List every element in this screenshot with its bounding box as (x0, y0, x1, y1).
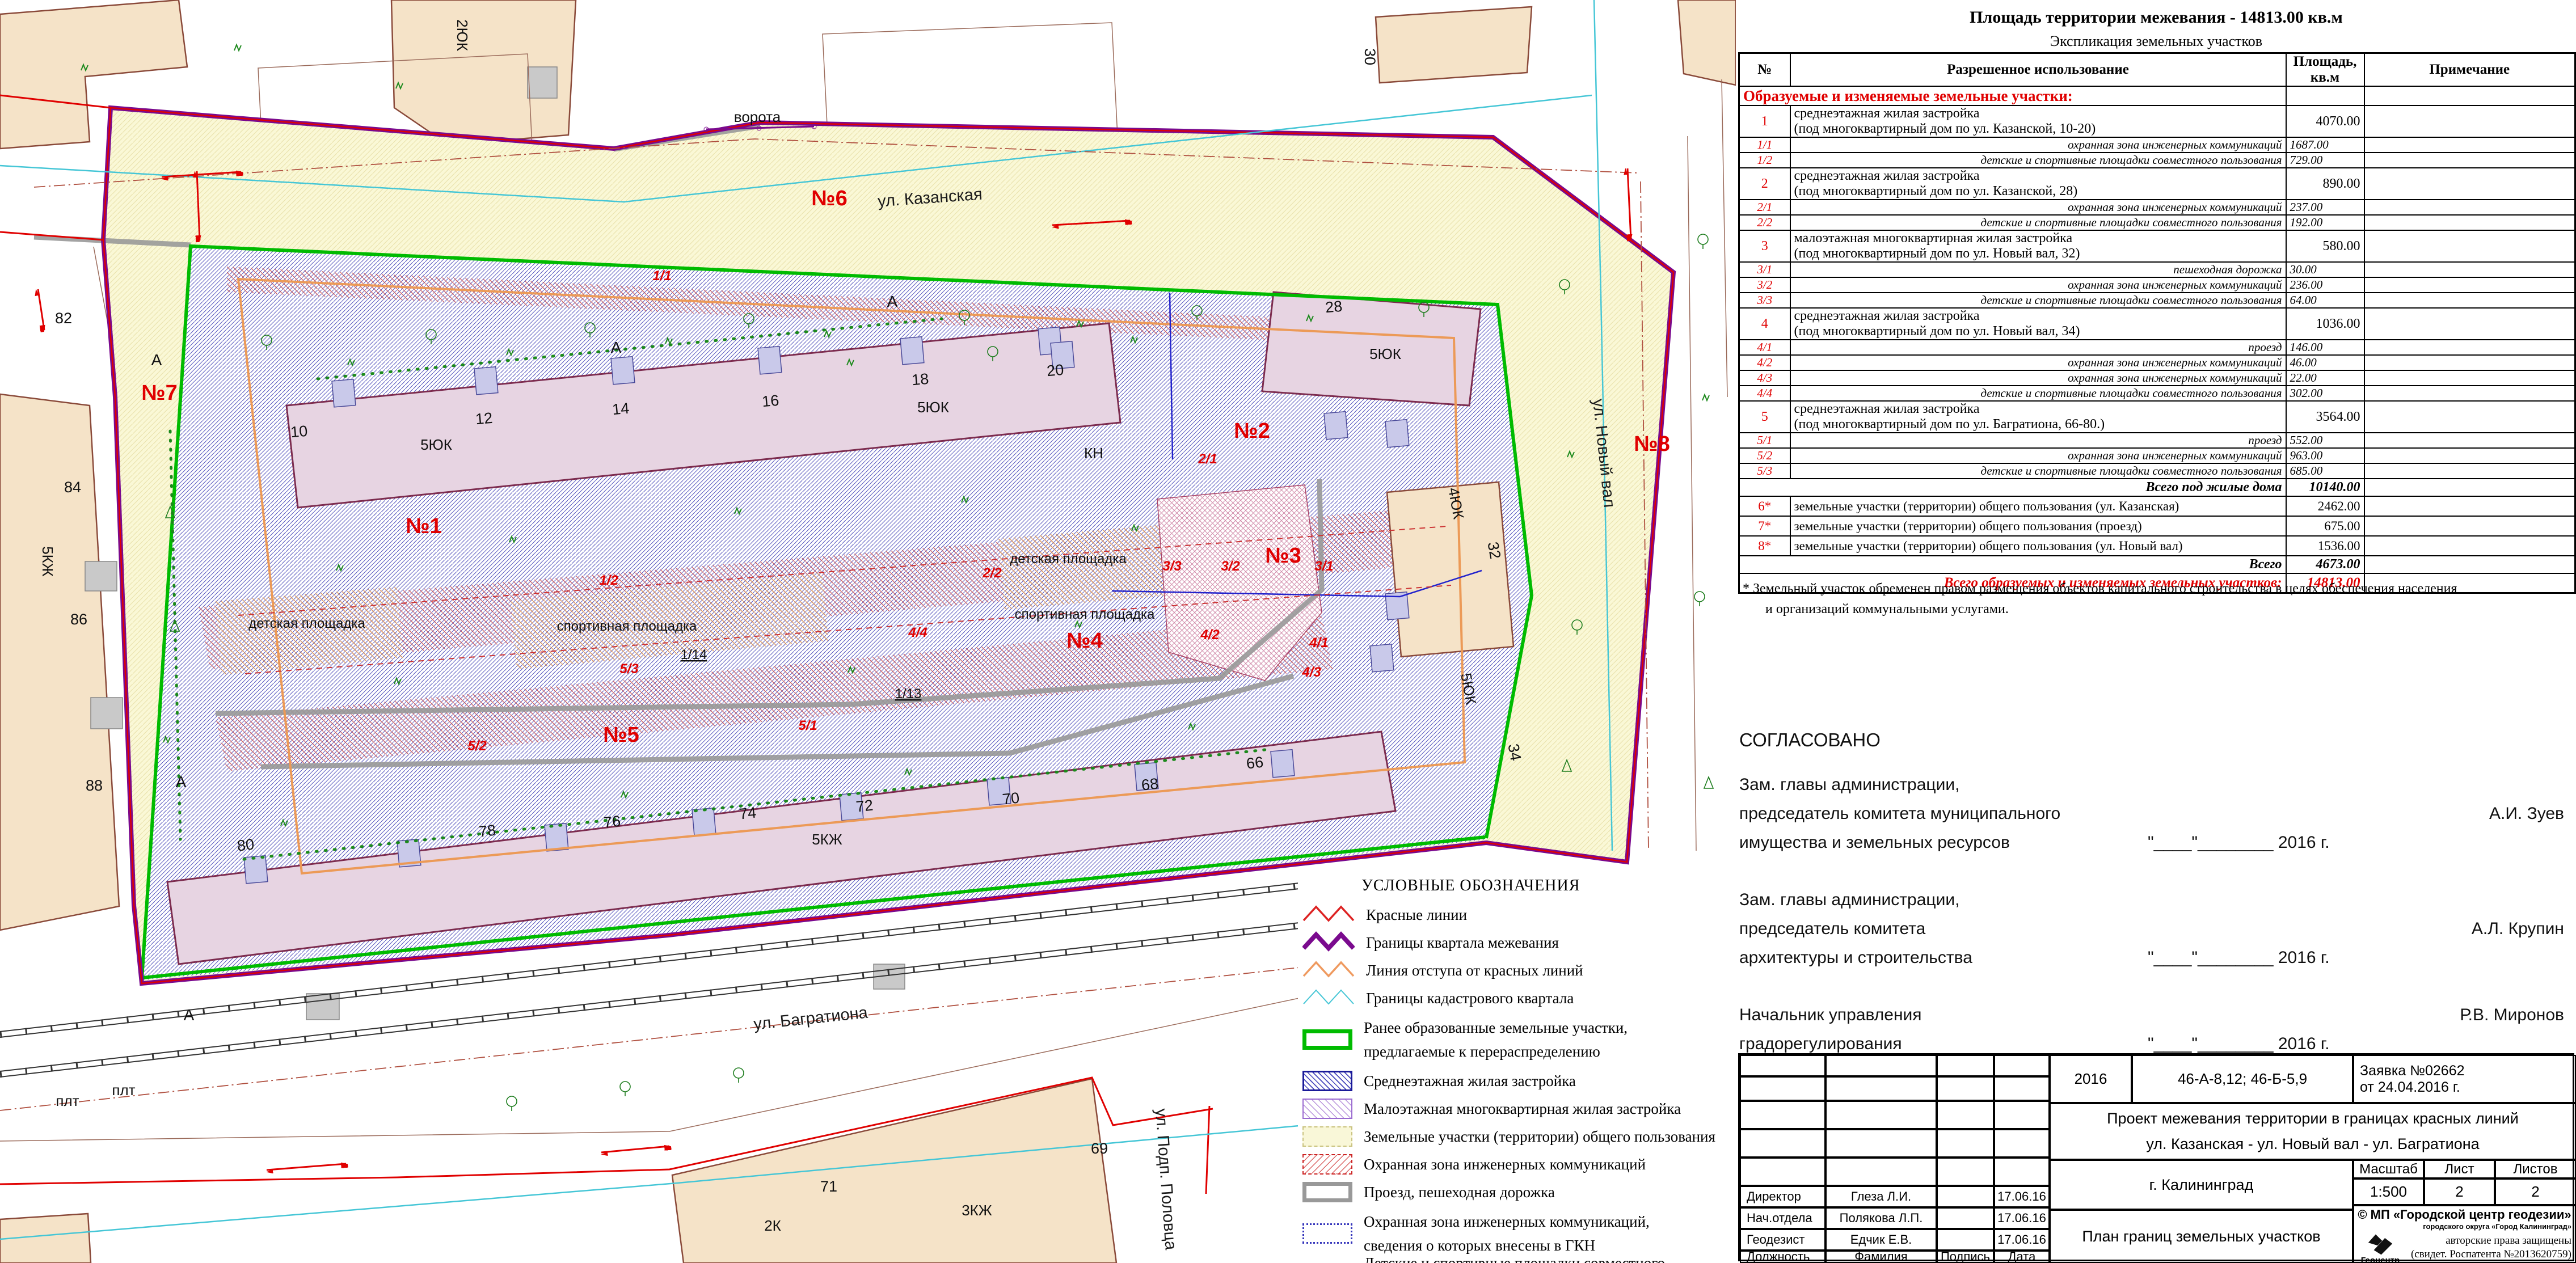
table-row: 1среднеэтажная жилая застройка(под много… (1739, 105, 2575, 137)
document-title: Площадь территории межевания - 14813.00 … (1738, 8, 2574, 27)
map-label: 66 (1246, 754, 1264, 772)
map-label: А (611, 339, 622, 356)
column-header: Примечание (2364, 53, 2575, 87)
approval-line: имущества и земельных ресурсов"____"____… (1739, 828, 2566, 857)
stamp-empty-cell (1937, 1129, 1994, 1158)
stamp-year: 2016 (2050, 1055, 2132, 1103)
map-label: 34 (1504, 742, 1524, 762)
legend-area-swatch (1302, 1126, 1352, 1147)
map-label: 3/2 (1221, 559, 1240, 574)
table-row: 2/1охранная зона инженерных коммуникаций… (1739, 200, 2575, 215)
legend-label: Земельные участки (территории) общего по… (1364, 1125, 1715, 1148)
stamp-sheets-value: 2 (2495, 1178, 2576, 1205)
section-row: Образуемые и изменяемые земельные участк… (1739, 86, 2575, 105)
stamp-empty-cell (1994, 1076, 2050, 1101)
logo-text: Геоцентр (2358, 1256, 2403, 1263)
table-row: 5/1проезд552.00 (1739, 433, 2575, 448)
legend-line-swatch (1302, 985, 1355, 1011)
map-label: 84 (64, 479, 81, 496)
map-label: №5 (603, 723, 639, 747)
stamp-request: Заявка №02662от 24.04.2016 г. (2353, 1055, 2576, 1103)
approval-line: Начальник управленияР.В. Миронов (1739, 1000, 2566, 1029)
table-row: 7*земельные участки (территории) общего … (1739, 516, 2575, 536)
legend-label: Охранная зона инженерных коммуникаций (1364, 1152, 1646, 1176)
table-row: 4/3охранная зона инженерных коммуникаций… (1739, 370, 2575, 386)
approver-name: А.Л. Крупин (2472, 914, 2564, 943)
stamp-empty-cell (1994, 1129, 2050, 1158)
map-label: №2 (1234, 419, 1270, 443)
stamp-role-cell: Нач.отдела (1740, 1207, 1825, 1229)
table-row: 6*земельные участки (территории) общего … (1739, 496, 2575, 516)
stamp-city: г. Калининград (2050, 1160, 2353, 1210)
map-label: 69 (1091, 1140, 1108, 1157)
title-block: ДиректорГлеза Л.И.17.06.16Нач.отделаПоля… (1738, 1053, 2574, 1261)
table-row: 4/4детские и спортивные площадки совмест… (1739, 386, 2575, 401)
geocentr-logo: Геоцентр (2358, 1231, 2403, 1263)
table-row: 3/3детские и спортивные площадки совмест… (1739, 293, 2575, 308)
stamp-empty-cell (1825, 1129, 1937, 1158)
map-label: №6 (811, 187, 848, 210)
stamp-empty-cell (1740, 1076, 1825, 1101)
map-label: 5ЮК (1369, 345, 1401, 362)
legend-label: Детские и спортивные площадки совместног… (1364, 1251, 1736, 1263)
explication-table: №Разрешенное использованиеПлощадь,кв.мПр… (1738, 52, 2576, 594)
legend-area-swatch (1302, 1071, 1352, 1091)
map-label: 30 (1361, 48, 1378, 65)
legend-item: Границы кадастрового квартала (1298, 984, 1736, 1012)
stamp-role-cell: Дата (1994, 1251, 2050, 1263)
table-row: 2/2детские и спортивные площадки совмест… (1739, 215, 2575, 230)
map-label: детская площадка (1010, 551, 1127, 567)
stamp-empty-cell (1994, 1055, 2050, 1076)
map-label: 28 (1325, 298, 1343, 316)
stamp-role-cell: Глеза Л.И. (1825, 1186, 1937, 1207)
stamp-scale-label: Масштаб (2353, 1160, 2424, 1178)
map-label: 3/3 (1162, 559, 1182, 574)
legend-label: Охранная зона инженерных коммуникаций,св… (1364, 1210, 1650, 1257)
column-header: Разрешенное использование (1790, 53, 2286, 87)
map-label: 12 (475, 409, 494, 428)
stamp-role-cell: Едчик Е.В. (1825, 1229, 1937, 1251)
stamp-sheet-value: 2 (2424, 1178, 2495, 1205)
map-label: 3КЖ (962, 1202, 992, 1219)
map-label: А (184, 1006, 195, 1024)
map-label: 1/13 (895, 686, 922, 702)
legend-label: Линия отступа от красных линий (1366, 958, 1583, 982)
map-label: ворота (734, 108, 781, 125)
stamp-empty-cell (1994, 1101, 2050, 1129)
map-label: 82 (55, 310, 72, 327)
map-label: 5КЖ (812, 831, 842, 848)
legend-label: Красные линии (1366, 903, 1467, 927)
map-label: 4/3 (1301, 665, 1321, 680)
stamp-empty-cell (1740, 1158, 1825, 1186)
stamp-role-cell: Фамилия (1825, 1251, 1937, 1263)
map-label: 5/2 (467, 738, 487, 754)
table-footnote: * Земельный участок обременен правом раз… (1743, 578, 2571, 619)
map-label: 3/1 (1314, 559, 1333, 574)
approval-group: Начальник управленияР.В. Мироновградорег… (1739, 1000, 2566, 1058)
approvals: СОГЛАСОВАНО Зам. главы администрации,пре… (1739, 729, 2566, 1087)
legend-label: Среднеэтажная жилая застройка (1364, 1069, 1576, 1093)
stamp-role-cell: 17.06.16 (1994, 1186, 2050, 1207)
explication-table-wrap: №Разрешенное использованиеПлощадь,кв.мПр… (1738, 52, 2576, 594)
table-row: 1/2детские и спортивные площадки совмест… (1739, 153, 2575, 168)
stamp-role-cell: Подпись (1937, 1251, 1994, 1263)
approval-line: Зам. главы администрации, (1739, 885, 2566, 914)
org-right: авторские права защищены(свидет. Роспате… (2403, 1231, 2571, 1261)
stamp-empty-cell (1740, 1129, 1825, 1158)
legend-item: Среднеэтажная жилая застройка (1298, 1067, 1736, 1095)
stamp-scale-value: 1:500 (2353, 1178, 2424, 1205)
stamp-empty-cell (1937, 1055, 1994, 1076)
legend-item: Ранее образованные земельные участки,пре… (1298, 1012, 1736, 1067)
map-label: 86 (70, 611, 87, 628)
legend-item: Малоэтажная многоквартирная жилая застро… (1298, 1095, 1736, 1122)
stamp-empty-cell (1740, 1055, 1825, 1076)
map-label: 74 (739, 804, 757, 823)
map-label: КН (1084, 445, 1103, 462)
table-row: 3малоэтажная многоквартирная жилая застр… (1739, 230, 2575, 262)
map-label: 2ЮК (454, 19, 471, 51)
approver-name: Р.В. Миронов (2460, 1000, 2564, 1029)
table-row: Всего под жилые дома10140.00 (1739, 479, 2575, 496)
approval-line: председатель комитета муниципальногоА.И.… (1739, 799, 2566, 828)
map-label: 2/1 (1198, 451, 1217, 467)
map-label: детская площадка (248, 616, 365, 631)
stamp-role-cell: Геодезист (1740, 1229, 1825, 1251)
column-header: Площадь,кв.м (2286, 53, 2364, 87)
map-label: №3 (1265, 544, 1301, 568)
footnote-line: и организаций коммунальными услугами. (1743, 599, 2571, 619)
approvals-heading: СОГЛАСОВАНО (1739, 729, 2566, 751)
table-row: 4среднеэтажная жилая застройка(под много… (1739, 308, 2575, 340)
legend: УСЛОВНЫЕ ОБОЗНАЧЕНИЯ Красные линииГраниц… (1298, 870, 1736, 1263)
stamp-role-cell: 17.06.16 (1994, 1207, 2050, 1229)
stamp-empty-cell (1825, 1076, 1937, 1101)
stamp-role-cell (1937, 1186, 1994, 1207)
legend-item: Охранная зона инженерных коммуникаций (1298, 1150, 1736, 1178)
map-label: №4 (1066, 629, 1103, 653)
approver-name: А.И. Зуев (2489, 799, 2564, 828)
table-row: Всего4673.00 (1739, 556, 2575, 573)
stamp-role-cell: Полякова Л.П. (1825, 1207, 1937, 1229)
stamp-empty-cell (1825, 1158, 1937, 1186)
legend-area-swatch (1302, 1154, 1352, 1175)
table-row: 4/1проезд146.00 (1739, 340, 2575, 355)
legend-item: Границы квартала межевания (1298, 928, 1736, 956)
map-label: 1/1 (652, 268, 671, 284)
stamp-role-cell (1937, 1229, 1994, 1251)
stamp-empty-cell (1937, 1076, 1994, 1101)
table-row: 4/2охранная зона инженерных коммуникаций… (1739, 355, 2575, 370)
legend-label: Границы квартала межевания (1366, 931, 1559, 954)
map-label: А (887, 293, 898, 310)
map-label: 5ЮК (917, 399, 949, 416)
stamp-code: 46-А-8,12; 46-Б-5,9 (2132, 1055, 2353, 1103)
map-label: 88 (86, 777, 103, 794)
legend-label: Ранее образованные земельные участки,пре… (1364, 1016, 1628, 1063)
map-label: 71 (820, 1178, 837, 1195)
map-label: 68 (1141, 775, 1160, 794)
map-label: 5/1 (798, 718, 817, 733)
legend-area-swatch (1302, 1099, 1352, 1119)
map-label: №1 (406, 514, 442, 538)
table-row: 3/1пешеходная дорожка30.00 (1739, 262, 2575, 277)
legend-item: Линия отступа от красных линий (1298, 956, 1736, 984)
table-row: 5/2охранная зона инженерных коммуникаций… (1739, 448, 2575, 463)
date-placeholder: "____"________ 2016 г. (2148, 828, 2330, 857)
approval-group: Зам. главы администрации,председатель ко… (1739, 770, 2566, 857)
map-label: А (151, 351, 162, 369)
approval-group: Зам. главы администрации,председатель ко… (1739, 885, 2566, 972)
legend-label: Границы кадастрового квартала (1366, 986, 1574, 1010)
stamp-empty-cell (1740, 1101, 1825, 1129)
legend-area-swatch (1302, 1182, 1352, 1202)
map-label: 4/1 (1309, 635, 1328, 650)
legend-label: Малоэтажная многоквартирная жилая застро… (1364, 1097, 1681, 1121)
table-row: 1/1охранная зона инженерных коммуникаций… (1739, 137, 2575, 153)
map-label: 10 (290, 423, 309, 441)
map-label: плт (56, 1092, 79, 1109)
legend-area-swatch (1302, 1029, 1352, 1050)
legend-line-swatch (1302, 929, 1355, 956)
legend-item: Красные линии (1298, 901, 1736, 928)
stamp-project-title: Проект межевания территории в границах к… (2050, 1103, 2576, 1160)
map-label: 5КЖ (39, 546, 56, 577)
stamp-drawing-title: План границ земельных участков (2050, 1210, 2353, 1263)
map-label: 32 (1484, 540, 1504, 560)
stamp-empty-cell (1825, 1055, 1937, 1076)
stamp-role-cell (1937, 1207, 1994, 1229)
legend-item: Земельные участки (территории) общего по… (1298, 1122, 1736, 1150)
stamp-role-cell: Директор (1740, 1186, 1825, 1207)
table-row: 2среднеэтажная жилая застройка(под много… (1739, 168, 2575, 200)
stamp-empty-cell (1994, 1158, 2050, 1186)
column-header: № (1739, 53, 1790, 87)
map-label: 78 (478, 822, 497, 840)
map-label: №8 (1634, 432, 1670, 456)
org-row: Геоцентравторские права защищены(свидет.… (2358, 1231, 2571, 1263)
approval-line: председатель комитетаА.Л. Крупин (1739, 914, 2566, 943)
stamp-role-cell: 17.06.16 (1994, 1229, 2050, 1251)
approval-line: Зам. главы администрации, (1739, 770, 2566, 799)
map-label: А (176, 773, 187, 791)
map-label: №7 (141, 381, 178, 405)
map-label: 4/2 (1200, 627, 1220, 643)
map-label: 14 (612, 400, 630, 419)
map-label: 2/2 (982, 565, 1002, 581)
map-label: 1/2 (599, 573, 618, 588)
stamp-empty-cell (1937, 1101, 1994, 1129)
org-name: © МП «Городской центр геодезии» (2358, 1207, 2571, 1222)
map-label: 76 (603, 813, 622, 831)
legend-item: Проезд, пешеходная дорожка (1298, 1178, 1736, 1206)
table-row: 8*земельные участки (территории) общего … (1739, 536, 2575, 556)
map-label: спортивная площадка (557, 619, 697, 634)
table-header-row: №Разрешенное использованиеПлощадь,кв.мПр… (1739, 53, 2575, 87)
map-label: 2К (764, 1217, 781, 1234)
document-subtitle: Экспликация земельных участков (1738, 33, 2574, 50)
map-label: 18 (911, 370, 930, 389)
legend-label: Проезд, пешеходная дорожка (1364, 1180, 1555, 1204)
map-label: плт (112, 1082, 135, 1099)
legend-title: УСЛОВНЫЕ ОБОЗНАЧЕНИЯ (1361, 877, 1736, 895)
stamp-empty-cell (1937, 1158, 1994, 1186)
legend-line-swatch (1302, 901, 1355, 928)
map-label: 4/4 (908, 625, 927, 640)
date-placeholder: "____"________ 2016 г. (2148, 943, 2330, 972)
stamp-role-cell: Должность (1740, 1251, 1825, 1263)
map-label: 1/14 (681, 647, 707, 662)
legend-line-swatch (1302, 957, 1355, 983)
stamp-empty-cell (1825, 1101, 1937, 1129)
map-label: 80 (237, 836, 255, 855)
stamp-sheet-label: Лист (2424, 1160, 2495, 1178)
table-row: 3/2охранная зона инженерных коммуникаций… (1739, 277, 2575, 293)
approval-line: архитектуры и строительства"____"_______… (1739, 943, 2566, 972)
stamp-org: © МП «Городской центр геодезии»городског… (2353, 1205, 2576, 1263)
map-label: 20 (1046, 361, 1065, 380)
map-label: 5/3 (619, 661, 639, 677)
legend-item: Детские и спортивные площадки совместног… (1298, 1261, 1736, 1263)
map-label: 70 (1002, 789, 1021, 808)
table-row: 5среднеэтажная жилая застройка(под много… (1739, 401, 2575, 433)
sheet: ул. Казанскаяул. Новый валул. Багратиона… (0, 0, 2576, 1263)
map-label: 72 (855, 797, 874, 816)
table-row: 5/3детские и спортивные площадки совмест… (1739, 463, 2575, 479)
footnote-line: * Земельный участок обременен правом раз… (1743, 578, 2571, 599)
map-label: 5ЮК (420, 436, 452, 453)
map-label: спортивная площадка (1015, 607, 1155, 622)
map-label: 16 (761, 392, 780, 411)
legend-area-swatch (1302, 1223, 1352, 1244)
stamp-sheets-label: Листов (2495, 1160, 2576, 1178)
org-sub: городского округа «Город Калининград» (2358, 1222, 2571, 1231)
